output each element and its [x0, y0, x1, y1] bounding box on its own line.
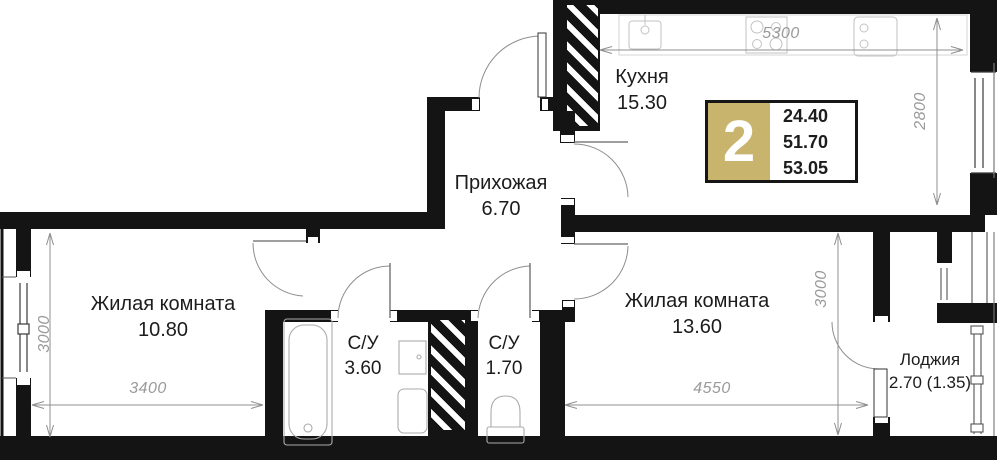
wall-left-lower [16, 378, 31, 436]
fridge-icon [854, 17, 897, 56]
kitchen-door-arc [574, 144, 628, 197]
floor-plan: Кухня 15.30 Прихожая 6.70 Жилая комната … [0, 0, 1000, 460]
dim-living2-depth: 3000 [813, 249, 831, 329]
window-kitchen [971, 63, 996, 178]
wall-kitchen-east-upper [970, 0, 997, 72]
dim-living1-width: 3400 [108, 380, 188, 398]
wall-kitchen-south [562, 215, 985, 232]
entry-door-leaf [538, 33, 546, 97]
jamb-tab [561, 237, 574, 243]
jamb-tab [875, 417, 888, 423]
bath1-door-arc [338, 266, 390, 318]
jamb-tab [542, 99, 548, 110]
jamb-tab [561, 135, 574, 142]
jamb-tab [561, 199, 574, 205]
jamb-tab [17, 271, 30, 278]
room-label-bath1: С/У 3.60 [315, 331, 411, 381]
badge-total-area: 53.05 [783, 155, 855, 181]
badge-living-area: 24.40 [783, 103, 855, 129]
jamb-tab [875, 316, 888, 322]
dim-living2-width: 4550 [672, 380, 752, 398]
wall-loggia-west [873, 232, 890, 322]
badge-apartment-area: 51.70 [783, 129, 855, 155]
jamb-tab [563, 301, 574, 307]
wall-top-left [0, 212, 445, 229]
room-label-bath2: С/У 1.70 [456, 331, 552, 381]
jamb-tab [471, 311, 478, 321]
jamb-tab [17, 378, 30, 385]
bath2-door-arc [478, 266, 530, 318]
wall-bottom [0, 436, 997, 460]
room-label-living2: Жилая комната 13.60 [587, 288, 807, 340]
room-label-kitchen: Кухня 15.30 [582, 64, 702, 116]
wall-left-upper [16, 229, 31, 277]
jamb-tab [331, 311, 338, 321]
room-count-badge: 2 [708, 103, 770, 180]
wall-kitchen-east-lower [970, 173, 997, 215]
dim-kitchen-width: 5300 [741, 25, 821, 43]
badge-area-values: 24.40 51.70 53.05 [770, 103, 855, 180]
dim-kitchen-depth: 2800 [912, 71, 930, 151]
kitchen-sink-icon [629, 15, 661, 49]
apartment-area-badge: 2 24.40 51.70 53.05 [705, 100, 858, 183]
wall-kitchen-top [598, 0, 970, 14]
jamb-tab [308, 237, 318, 243]
room-label-hallway: Прихожая 6.70 [440, 170, 562, 222]
entry-door-arc [479, 36, 541, 98]
room-label-loggia: Лоджия 2.70 (1.35) [872, 348, 988, 394]
living1-door-arc [253, 243, 303, 296]
room-label-living1: Жилая комната 10.80 [53, 291, 273, 343]
jamb-tab [472, 99, 479, 110]
dim-living1-depth: 3000 [36, 294, 54, 374]
wall-loggia-north [937, 303, 997, 323]
jamb-tab [390, 311, 397, 321]
window-living1 [18, 283, 29, 372]
wall-ne-stub [937, 232, 952, 263]
jamb-tab [532, 311, 539, 321]
washer-icon [398, 389, 427, 433]
